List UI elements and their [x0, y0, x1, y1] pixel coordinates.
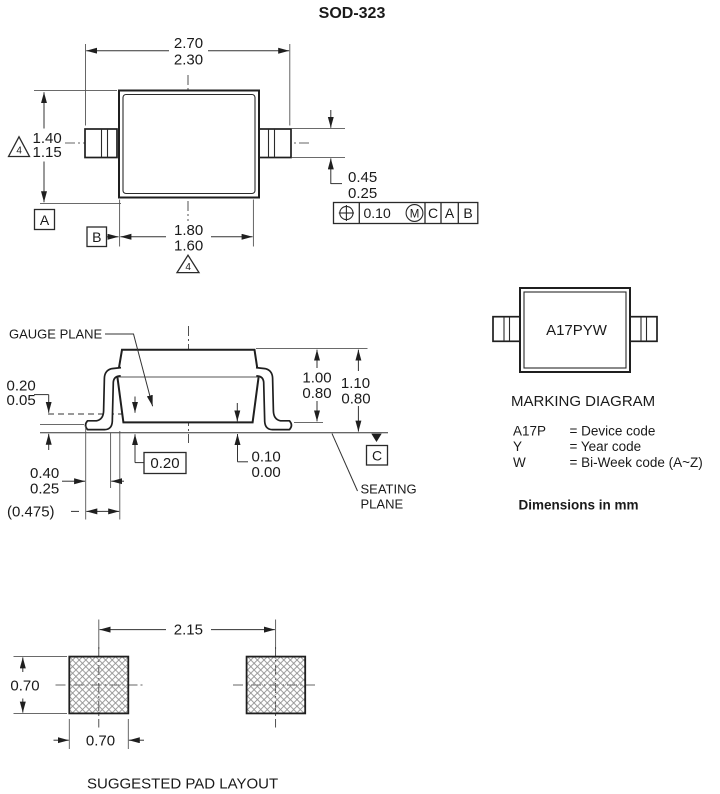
dim-body-width-min: 1.60 — [174, 238, 203, 255]
dim-clearance-max: 0.10 — [252, 449, 281, 466]
datum-c-label: C — [372, 448, 382, 464]
seating-plane-label-2: PLANE — [361, 497, 404, 512]
marking-right-lead — [630, 317, 657, 342]
dim-lead-width-min: 0.25 — [348, 185, 377, 202]
fcf-tolerance: 0.10 — [364, 205, 391, 221]
side-view: GAUGE PLANE 0.20 0.05 0.20 0.10 0.00 — [7, 326, 417, 521]
datum-b-label: B — [92, 229, 101, 245]
drawing-canvas: SOD-323 2.70 2.30 — [0, 0, 720, 794]
dim-pad-pitch: 2.15 — [99, 620, 276, 650]
legend-key-2: Y — [513, 439, 522, 454]
legend-desc-3: = Bi-Week code (A~Z) — [570, 455, 703, 470]
left-pad — [69, 657, 128, 714]
marking-diagram: A17PYW MARKING DIAGRAM A17P = Device cod… — [493, 288, 703, 513]
datum-a-label: A — [40, 212, 50, 228]
marking-code: A17PYW — [546, 322, 608, 339]
pad-layout: 2.15 0.70 0.70 SUGGESTED PAD LAYOUT — [10, 620, 317, 793]
datum-c: C — [367, 434, 388, 465]
dim-clearance-min: 0.00 — [252, 464, 281, 481]
dim-pad-width-value: 0.70 — [86, 732, 115, 749]
feature-control-frame: 0.10 M C A B — [334, 203, 478, 224]
datum-b: B — [87, 227, 119, 247]
dim-total-height-min: 0.80 — [341, 390, 370, 407]
dim-gauge-ref-value: 0.20 — [150, 455, 179, 472]
top-view-body-outline — [119, 91, 259, 198]
dim-width-max: 2.70 — [174, 35, 203, 52]
marking-legend: A17P = Device code Y = Year code W = Bi-… — [513, 423, 703, 470]
marking-left-lead — [493, 317, 520, 342]
side-view-left-lead — [86, 368, 121, 430]
gauge-plane-label: GAUGE PLANE — [9, 327, 103, 342]
datum-c-triangle-icon — [371, 434, 381, 442]
dim-pad-pitch-value: 2.15 — [174, 622, 203, 639]
dim-foot: 0.40 0.25 (0.475) — [7, 426, 124, 521]
page-title: SOD-323 — [319, 5, 386, 22]
dim-pad-height-value: 0.70 — [10, 678, 39, 695]
dim-body-width-max: 1.80 — [174, 222, 203, 239]
dim-lead-ref: (0.475) — [7, 504, 55, 521]
fcf-modifier: M — [410, 208, 420, 220]
note-triangle-left-number: 4 — [16, 146, 22, 157]
dim-body-height-min: 0.80 — [302, 385, 331, 402]
units-note: Dimensions in mm — [519, 498, 639, 513]
dim-body-width: 1.80 1.60 4 — [120, 200, 254, 273]
position-symbol-icon — [339, 205, 354, 221]
legend-desc-2: = Year code — [570, 439, 642, 454]
pad-layout-heading: SUGGESTED PAD LAYOUT — [87, 776, 278, 793]
fcf-datum-3: B — [463, 205, 472, 221]
datum-a: A — [35, 210, 55, 230]
note-triangle-bottom-number: 4 — [185, 262, 191, 273]
dim-lead-width-max: 0.45 — [348, 169, 377, 186]
legend-key-3: W — [513, 455, 526, 470]
dim-width-min: 2.30 — [174, 52, 203, 69]
marking-heading: MARKING DIAGRAM — [511, 393, 655, 410]
datasheet-package-drawing: SOD-323 2.70 2.30 — [0, 0, 720, 794]
side-view-right-lead — [256, 368, 291, 430]
dim-standoff-min: 0.05 — [7, 392, 36, 409]
dim-body-height: 1.00 0.80 — [302, 350, 331, 422]
dim-foot-min: 0.25 — [30, 480, 59, 497]
dim-lead-width: 0.45 0.25 — [292, 110, 378, 202]
fcf-datum-1: C — [428, 205, 438, 221]
dim-total-height: 1.10 0.80 — [341, 350, 371, 432]
fcf-datum-2: A — [445, 205, 455, 221]
right-pad — [247, 657, 306, 714]
top-view: 2.70 2.30 4 1.40 1.15 A B — [9, 35, 478, 273]
legend-key-1: A17P — [513, 423, 546, 438]
dim-height-min: 1.15 — [33, 144, 62, 161]
dim-standoff: 0.20 0.05 — [7, 378, 49, 451]
legend-desc-1: = Device code — [570, 423, 656, 438]
seating-plane-label-1: SEATING — [361, 482, 417, 497]
